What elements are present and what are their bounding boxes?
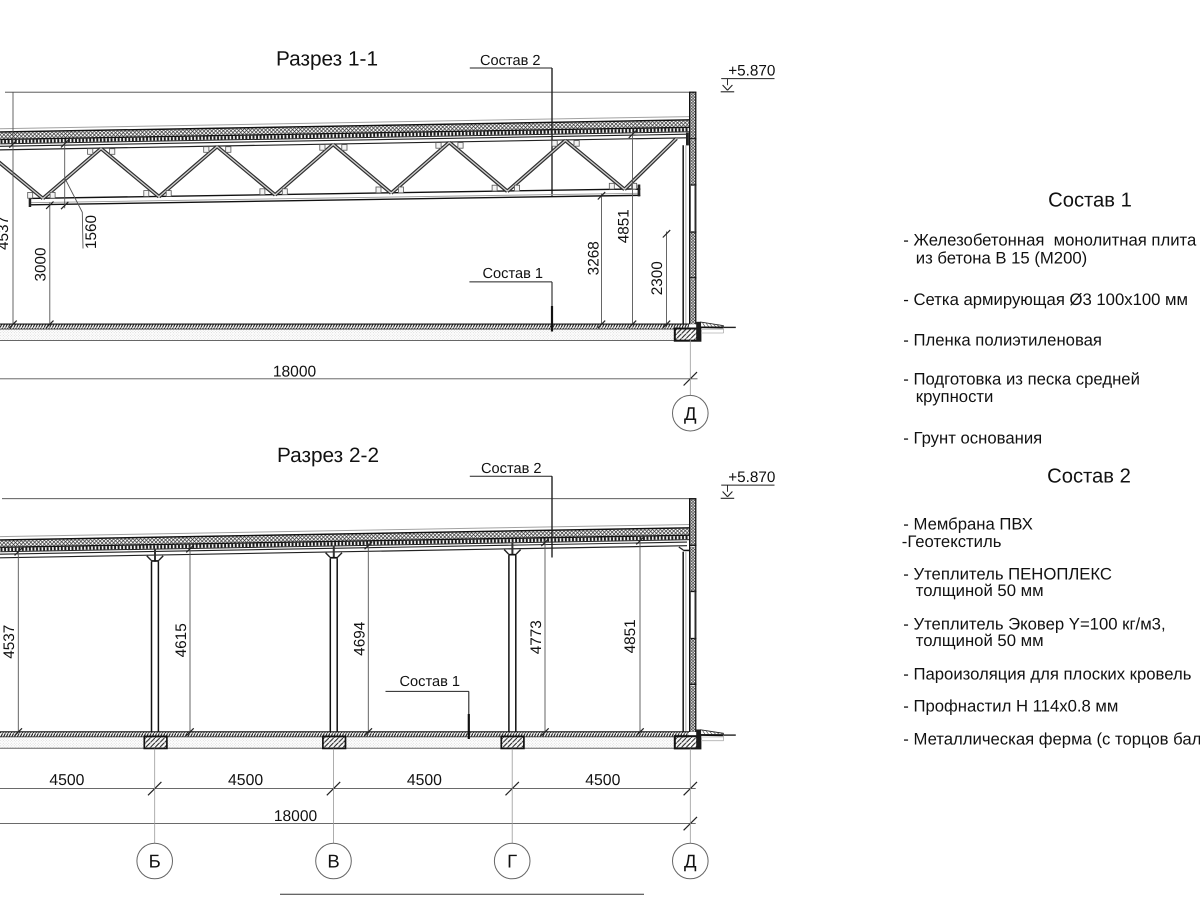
svg-text:из бетона В 15 (М200): из бетона В 15 (М200)	[916, 249, 1087, 268]
svg-text:- Железобетонная монолитная п: - Железобетонная монолитная плита	[903, 231, 1197, 250]
svg-text:Состав 2: Состав 2	[1047, 466, 1131, 488]
svg-text:Состав 1: Состав 1	[400, 674, 461, 690]
svg-text:Разрез 1-1: Разрез 1-1	[276, 48, 378, 71]
svg-text:4694: 4694	[352, 621, 369, 656]
svg-text:4851: 4851	[622, 619, 639, 653]
svg-text:4615: 4615	[173, 623, 190, 657]
svg-text:толщиной 50 мм: толщиной 50 мм	[916, 581, 1044, 600]
svg-text:Состав 2: Состав 2	[480, 53, 541, 69]
svg-text:Г: Г	[507, 851, 517, 872]
svg-text:18000: 18000	[274, 808, 318, 825]
svg-text:- Грунт основания: - Грунт основания	[903, 429, 1042, 448]
svg-text:-Геотекстиль: -Геотекстиль	[902, 532, 1002, 551]
svg-text:Разрез 2-2: Разрез 2-2	[277, 444, 379, 467]
svg-text:2300: 2300	[649, 261, 666, 295]
svg-text:+5.870: +5.870	[728, 469, 775, 486]
svg-text:- Мембрана ПВХ: - Мембрана ПВХ	[903, 515, 1033, 534]
svg-text:- Пароизоляция для плоских кро: - Пароизоляция для плоских кровель	[903, 665, 1191, 684]
svg-text:- Сетка армирующая Ø3 100х100: - Сетка армирующая Ø3 100х100 мм	[903, 290, 1188, 309]
svg-text:4537: 4537	[0, 216, 12, 250]
svg-text:18000: 18000	[273, 363, 317, 380]
svg-text:Б: Б	[149, 851, 161, 872]
svg-text:- Профнастил Н 114х0.8 мм: - Профнастил Н 114х0.8 мм	[903, 697, 1118, 716]
svg-text:В: В	[327, 851, 339, 872]
svg-text:Состав 1: Состав 1	[1048, 190, 1132, 212]
svg-text:3000: 3000	[33, 247, 50, 281]
svg-text:4500: 4500	[49, 772, 84, 789]
svg-text:Д: Д	[684, 851, 697, 872]
svg-text:4500: 4500	[407, 772, 442, 789]
svg-text:крупности: крупности	[916, 387, 994, 406]
svg-text:толщиной 50 мм: толщиной 50 мм	[916, 631, 1044, 650]
svg-text:- Пленка полиэтиленовая: - Пленка полиэтиленовая	[903, 330, 1102, 349]
svg-text:3268: 3268	[586, 241, 603, 275]
svg-text:Состав 1: Состав 1	[483, 266, 544, 282]
svg-text:4851: 4851	[615, 209, 632, 243]
svg-text:+5.870: +5.870	[728, 63, 775, 80]
svg-text:4500: 4500	[585, 772, 620, 789]
svg-text:1560: 1560	[83, 215, 100, 249]
svg-text:4773: 4773	[528, 620, 545, 654]
svg-text:Состав 2: Состав 2	[481, 461, 542, 477]
svg-text:- Металлическая ферма (с торцо: - Металлическая ферма (с торцов бал	[903, 730, 1200, 749]
svg-text:4537: 4537	[1, 625, 18, 659]
svg-text:4500: 4500	[228, 772, 263, 789]
svg-text:- Подготовка из песка средней: - Подготовка из песка средней	[903, 370, 1140, 389]
svg-text:Д: Д	[684, 403, 697, 424]
